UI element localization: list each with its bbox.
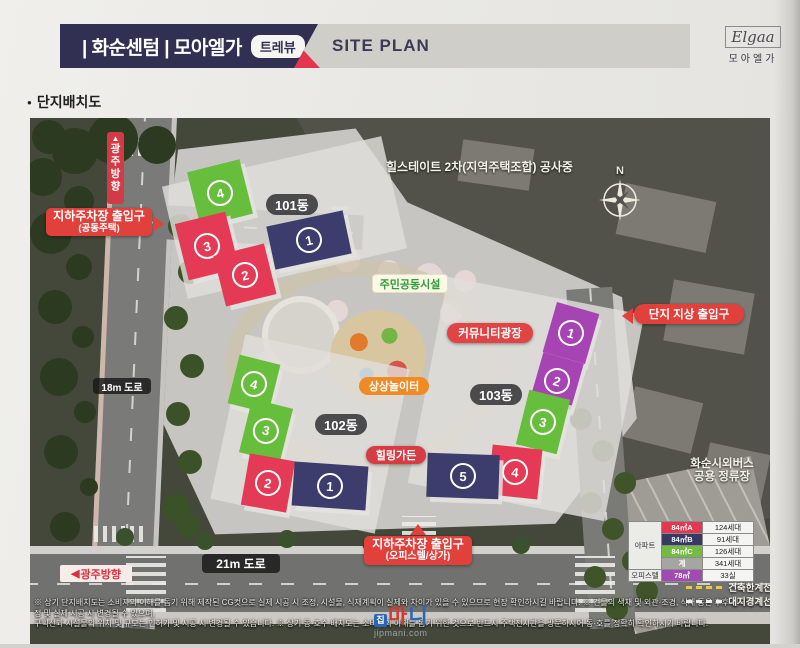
legend-type-84a: 84㎡A bbox=[662, 522, 702, 533]
parking-entrance-officetel-label: 지하주차장 출입구 (오피스텔/상가) bbox=[364, 536, 472, 565]
legend-category-apartment: 아파트 bbox=[629, 522, 661, 569]
unit-number: 3 bbox=[527, 406, 559, 438]
building-limit-line-row: 건축한계선 bbox=[630, 580, 770, 594]
legend-type-total: 계 bbox=[662, 558, 702, 569]
bus-stop-line2: 공용 정류장 bbox=[672, 471, 770, 484]
legend-type-84c: 84㎡C bbox=[662, 546, 702, 557]
arrow-left-icon bbox=[622, 308, 633, 324]
watermark-url: jipmani.com bbox=[374, 629, 428, 638]
legend-count-total: 341세대 bbox=[703, 558, 753, 569]
road-21m-label: 21m 도로 bbox=[202, 554, 280, 573]
gwangju-direction-left-label: ◀ 광주방향 bbox=[60, 565, 132, 582]
healing-garden-label: 힐링가든 bbox=[366, 446, 426, 464]
unit-number: 2 bbox=[229, 259, 261, 291]
site-plan-map: 4 1 3 2 101동 4 3 2 1 102동 1 2 3 4 5 103동… bbox=[30, 118, 770, 645]
compass: N bbox=[596, 166, 644, 228]
bus-stop-line1: 화순시외버스 bbox=[672, 458, 770, 471]
line-legend: 건축한계선 대지경계선 bbox=[630, 580, 770, 608]
community-plaza-label: 커뮤니티광장 bbox=[447, 323, 533, 343]
building-group-label-103: 103동 bbox=[470, 384, 522, 405]
building-group-label-101: 101동 bbox=[266, 194, 318, 215]
parking-entrance-residential-label: 지하주차장 출입구 (공동주택) bbox=[46, 208, 152, 236]
site-ground-entrance-label: 단지 지상 출입구 bbox=[634, 304, 744, 324]
bottom-road-trees bbox=[116, 528, 134, 546]
compass-north-label: N bbox=[596, 166, 644, 177]
building-102-1: 1 bbox=[292, 461, 369, 510]
watermark-char: 마 bbox=[388, 606, 407, 627]
site-boundary-line-label: 대지경계선 bbox=[728, 594, 770, 608]
legend-count-84b: 91세대 bbox=[703, 534, 753, 545]
unit-legend-table: 아파트 84㎡A 124세대 84㎡B 91세대 84㎡C 126세대 계 34… bbox=[628, 521, 754, 582]
watermark-icon: 집 bbox=[374, 614, 387, 627]
parking-entrance-residential-line2: (공동주택) bbox=[49, 223, 149, 234]
building-102-2: 2 bbox=[241, 453, 295, 512]
gwangju-direction-text: 광주방향 bbox=[108, 143, 123, 193]
header-title-bar: | 화순센텀 | 모아엘가 트레뷰 bbox=[60, 24, 318, 68]
parking-entrance-officetel-line2: (오피스텔/상가) bbox=[367, 551, 469, 563]
unit-number: 4 bbox=[501, 458, 530, 487]
bullet-icon: ● bbox=[27, 98, 32, 107]
legend-type-84b: 84㎡B bbox=[662, 534, 702, 545]
unit-number: 3 bbox=[250, 415, 282, 447]
page-bottom-edge bbox=[0, 644, 800, 648]
section-title: SITE PLAN bbox=[332, 36, 430, 56]
page-title: | 화순센텀 | 모아엘가 bbox=[82, 33, 242, 60]
building-limit-line-label: 건축한계선 bbox=[728, 580, 770, 594]
brand-logo: Elgaa 모아엘가 bbox=[718, 26, 788, 65]
brochure-page: | 화순센텀 | 모아엘가 트레뷰 SITE PLAN Elgaa 모아엘가 ●… bbox=[0, 0, 800, 648]
road-18m-label: 18m 도로 bbox=[93, 378, 151, 394]
building-group-label-102: 102동 bbox=[315, 414, 367, 435]
arrow-up-icon bbox=[410, 524, 426, 535]
gwangju-direction-vertical-label: ▲ 광주방향 bbox=[107, 132, 124, 204]
community-facility-label: 주민공동시설 bbox=[372, 274, 448, 293]
brand-logo-script: Elgaa bbox=[725, 26, 780, 48]
unit-number: 1 bbox=[316, 472, 344, 500]
bus-stop-label: 화순시외버스 공용 정류장 bbox=[672, 458, 770, 484]
building-103-5: 5 bbox=[426, 453, 499, 499]
unit-number: 4 bbox=[238, 368, 270, 400]
playground-label: 상상놀이터 bbox=[359, 377, 429, 395]
compass-icon bbox=[597, 177, 643, 223]
unit-number: 4 bbox=[204, 177, 236, 209]
building-limit-line-icon bbox=[686, 586, 722, 589]
map-subtitle: ● 단지배치도 bbox=[27, 92, 101, 112]
forest-trees bbox=[32, 120, 66, 154]
gwangju-direction-left-text: 광주방향 bbox=[80, 566, 120, 582]
brand-logo-name: 모아엘가 bbox=[718, 50, 788, 65]
up-arrow-icon: ▲ bbox=[112, 134, 120, 143]
unit-number: 1 bbox=[555, 317, 587, 349]
legend-count-84c: 126세대 bbox=[703, 546, 753, 557]
unit-number: 2 bbox=[541, 365, 573, 397]
unit-number: 1 bbox=[294, 225, 325, 256]
unit-number: 2 bbox=[253, 468, 283, 498]
header-section-bar: SITE PLAN bbox=[296, 24, 690, 68]
site-boundary-line-icon bbox=[686, 600, 722, 603]
watermark: 집 마 니 jipmani.com bbox=[374, 606, 428, 638]
left-arrow-icon: ◀ bbox=[71, 567, 79, 580]
watermark-logo: 집 마 니 bbox=[374, 606, 428, 627]
site-boundary-line-row: 대지경계선 bbox=[630, 594, 770, 608]
legend-count-84a: 124세대 bbox=[703, 522, 753, 533]
map-subtitle-text: 단지배치도 bbox=[37, 92, 101, 112]
page-edge-shadow bbox=[774, 0, 800, 648]
parking-entrance-officetel-line1: 지하주차장 출입구 bbox=[367, 538, 469, 551]
construction-note: 힐스테이트 2차(지역주택조합) 공사중 bbox=[386, 158, 573, 175]
watermark-char: 니 bbox=[408, 606, 427, 627]
parking-entrance-residential-line1: 지하주차장 출입구 bbox=[49, 210, 149, 223]
arrow-right-icon bbox=[153, 216, 164, 232]
title-badge: 트레뷰 bbox=[251, 35, 305, 58]
unit-number: 5 bbox=[450, 463, 477, 490]
